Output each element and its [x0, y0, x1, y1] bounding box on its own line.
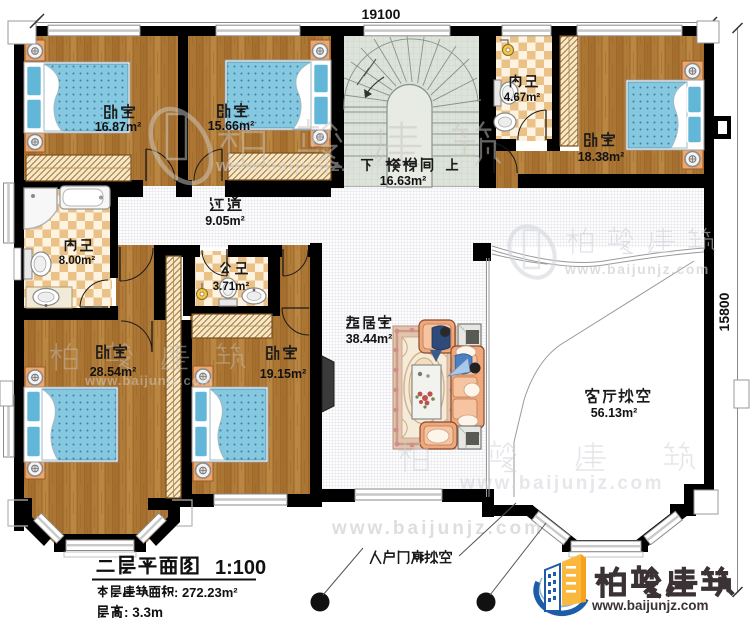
svg-text:www.baijunjz.com: www.baijunjz.com	[215, 156, 387, 175]
svg-text:: 272.23m²: : 272.23m²	[174, 585, 238, 600]
svg-text:18.38m²: 18.38m²	[578, 150, 625, 164]
svg-text:15.66m²: 15.66m²	[208, 119, 255, 133]
svg-text:28.54m²: 28.54m²	[90, 365, 137, 379]
svg-text:19100: 19100	[362, 6, 401, 22]
svg-text:4.67m²: 4.67m²	[504, 92, 541, 104]
svg-text:1:100: 1:100	[215, 557, 266, 579]
svg-text:16.87m²: 16.87m²	[95, 120, 142, 134]
svg-text:www.baijunjz.com: www.baijunjz.com	[459, 473, 664, 494]
svg-text:3.71m²: 3.71m²	[213, 281, 250, 293]
svg-text:www.baijunjz.com: www.baijunjz.com	[564, 261, 710, 277]
svg-text:9.05m²: 9.05m²	[205, 214, 245, 228]
svg-text:8.00m²: 8.00m²	[59, 255, 96, 267]
svg-text:www.baijunjz.com: www.baijunjz.com	[591, 598, 709, 613]
svg-text:19.15m²: 19.15m²	[260, 367, 307, 381]
svg-text:: 3.3m: : 3.3m	[124, 605, 163, 620]
svg-text:15800: 15800	[716, 292, 732, 331]
svg-text:56.13m²: 56.13m²	[591, 406, 638, 420]
svg-text:16.63m²: 16.63m²	[380, 174, 427, 188]
svg-text:www.baijunjz.com: www.baijunjz.com	[331, 518, 544, 539]
svg-text:38.44m²: 38.44m²	[346, 332, 393, 346]
